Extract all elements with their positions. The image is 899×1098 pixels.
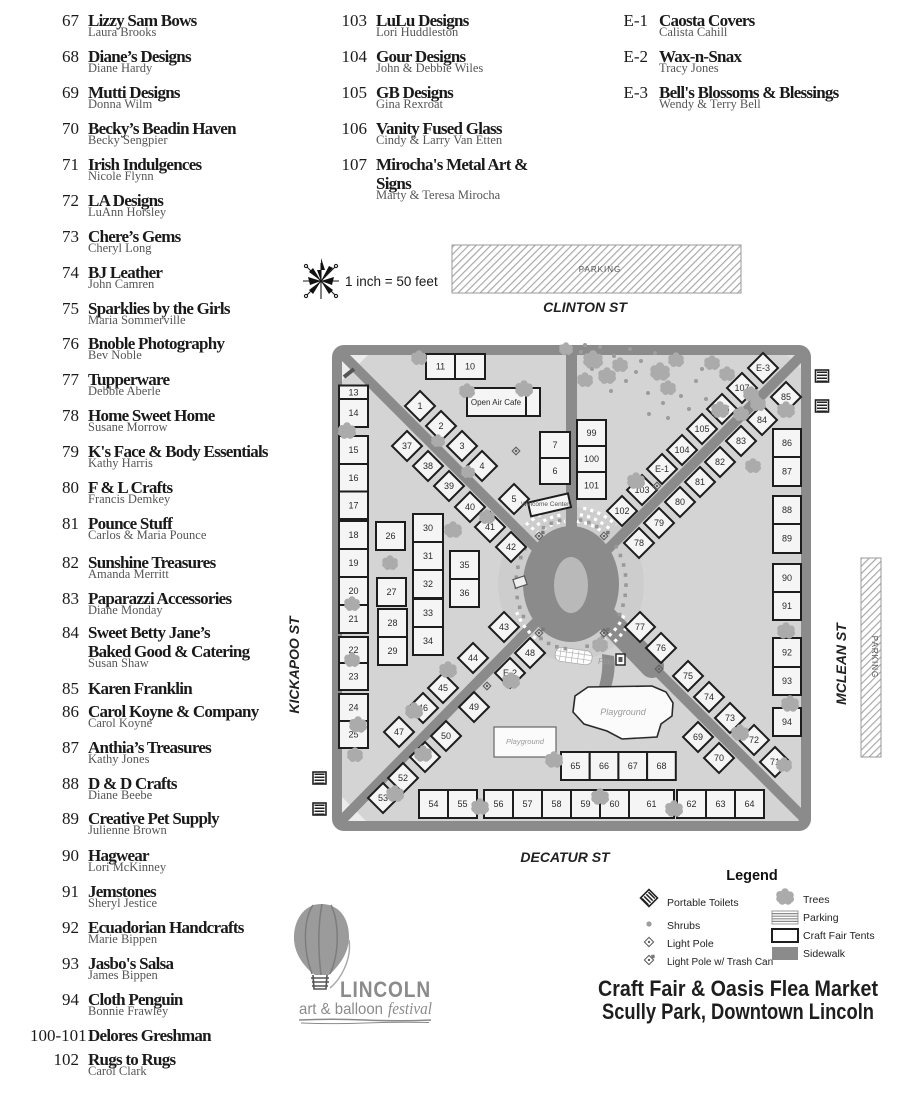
svg-text:Play: Play bbox=[598, 657, 615, 666]
svg-text:42: 42 bbox=[506, 542, 516, 552]
svg-text:87: 87 bbox=[782, 467, 792, 477]
svg-text:Trees: Trees bbox=[803, 894, 829, 906]
svg-text:Light Pole w/ Trash Can: Light Pole w/ Trash Can bbox=[667, 957, 773, 968]
svg-text:26: 26 bbox=[385, 531, 395, 541]
svg-text:80: 80 bbox=[675, 497, 685, 507]
svg-text:3: 3 bbox=[459, 441, 464, 451]
svg-text:34: 34 bbox=[423, 636, 433, 646]
svg-text:Welcome Center: Welcome Center bbox=[521, 501, 570, 508]
svg-text:Playground: Playground bbox=[600, 707, 647, 717]
svg-text:74: 74 bbox=[704, 692, 714, 702]
svg-text:60: 60 bbox=[609, 799, 619, 809]
svg-text:art & balloon: art & balloon bbox=[299, 1001, 383, 1018]
svg-text:76: 76 bbox=[656, 643, 666, 653]
svg-text:69: 69 bbox=[693, 732, 703, 742]
svg-text:15: 15 bbox=[348, 445, 358, 455]
svg-text:68: 68 bbox=[656, 761, 666, 771]
svg-text:52: 52 bbox=[398, 773, 408, 783]
svg-text:78: 78 bbox=[634, 538, 644, 548]
svg-text:102: 102 bbox=[614, 506, 629, 516]
svg-text:94: 94 bbox=[782, 717, 792, 727]
svg-text:6: 6 bbox=[552, 466, 557, 476]
svg-text:27: 27 bbox=[386, 587, 396, 597]
svg-text:79: 79 bbox=[654, 518, 664, 528]
svg-text:48: 48 bbox=[525, 648, 535, 658]
svg-text:63: 63 bbox=[715, 799, 725, 809]
svg-text:91: 91 bbox=[782, 601, 792, 611]
svg-text:101: 101 bbox=[584, 481, 599, 491]
svg-text:Light Pole: Light Pole bbox=[667, 938, 714, 950]
svg-text:93: 93 bbox=[782, 676, 792, 686]
svg-text:89: 89 bbox=[782, 534, 792, 544]
svg-text:100: 100 bbox=[584, 454, 599, 464]
svg-text:23: 23 bbox=[348, 672, 358, 682]
svg-text:35: 35 bbox=[459, 560, 469, 570]
svg-text:30: 30 bbox=[423, 523, 433, 533]
svg-text:88: 88 bbox=[782, 505, 792, 515]
svg-text:55: 55 bbox=[457, 799, 467, 809]
svg-text:37: 37 bbox=[402, 441, 412, 451]
svg-text:61: 61 bbox=[646, 799, 656, 809]
svg-text:18: 18 bbox=[348, 530, 358, 540]
svg-text:E-1: E-1 bbox=[655, 464, 669, 474]
svg-text:10: 10 bbox=[465, 362, 475, 372]
svg-text:36: 36 bbox=[459, 588, 469, 598]
svg-text:90: 90 bbox=[782, 573, 792, 583]
svg-text:PARKING: PARKING bbox=[870, 636, 879, 678]
svg-text:E-3: E-3 bbox=[756, 363, 770, 373]
svg-text:56: 56 bbox=[493, 799, 503, 809]
svg-text:99: 99 bbox=[586, 428, 596, 438]
svg-text:13: 13 bbox=[348, 387, 358, 397]
svg-text:MCLEAN ST: MCLEAN ST bbox=[833, 622, 849, 705]
svg-text:58: 58 bbox=[551, 799, 561, 809]
svg-text:29: 29 bbox=[387, 646, 397, 656]
svg-text:Open Air Cafe: Open Air Cafe bbox=[471, 398, 522, 407]
svg-text:73: 73 bbox=[725, 713, 735, 723]
svg-text:82: 82 bbox=[715, 457, 725, 467]
svg-text:24: 24 bbox=[348, 703, 358, 713]
svg-text:72: 72 bbox=[749, 735, 759, 745]
svg-text:4: 4 bbox=[479, 461, 484, 471]
svg-text:83: 83 bbox=[736, 436, 746, 446]
svg-text:66: 66 bbox=[599, 761, 609, 771]
svg-text:104: 104 bbox=[674, 445, 689, 455]
svg-text:81: 81 bbox=[695, 477, 705, 487]
svg-text:16: 16 bbox=[348, 473, 358, 483]
svg-text:67: 67 bbox=[628, 761, 638, 771]
svg-text:92: 92 bbox=[782, 648, 792, 658]
svg-text:49: 49 bbox=[469, 702, 479, 712]
svg-text:DECATUR ST: DECATUR ST bbox=[520, 849, 611, 865]
svg-text:Scully Park, Downtown Lincoln: Scully Park, Downtown Lincoln bbox=[602, 999, 874, 1024]
svg-text:64: 64 bbox=[744, 799, 754, 809]
svg-text:86: 86 bbox=[782, 438, 792, 448]
svg-text:1: 1 bbox=[417, 401, 422, 411]
svg-text:CLINTON ST: CLINTON ST bbox=[543, 299, 628, 315]
svg-text:Craft Fair Tents: Craft Fair Tents bbox=[803, 930, 875, 942]
svg-text:PARKING: PARKING bbox=[579, 265, 621, 274]
svg-text:20: 20 bbox=[348, 586, 358, 596]
svg-text:KICKAPOO ST: KICKAPOO ST bbox=[286, 615, 302, 714]
svg-text:84: 84 bbox=[757, 415, 767, 425]
svg-text:39: 39 bbox=[444, 481, 454, 491]
svg-text:17: 17 bbox=[348, 500, 358, 510]
svg-text:21: 21 bbox=[348, 614, 358, 624]
svg-text:Parking: Parking bbox=[803, 912, 839, 924]
svg-text:festival: festival bbox=[388, 999, 432, 1018]
svg-text:70: 70 bbox=[714, 753, 724, 763]
svg-text:19: 19 bbox=[348, 558, 358, 568]
svg-text:31: 31 bbox=[423, 551, 433, 561]
svg-text:77: 77 bbox=[635, 622, 645, 632]
svg-text:54: 54 bbox=[428, 799, 438, 809]
svg-text:5: 5 bbox=[511, 494, 516, 504]
svg-text:45: 45 bbox=[438, 683, 448, 693]
svg-text:11: 11 bbox=[436, 362, 445, 372]
svg-text:Shrubs: Shrubs bbox=[667, 920, 700, 932]
svg-text:85: 85 bbox=[781, 392, 791, 402]
svg-text:38: 38 bbox=[423, 461, 433, 471]
svg-text:43: 43 bbox=[499, 622, 509, 632]
svg-text:Legend: Legend bbox=[726, 868, 778, 884]
svg-text:32: 32 bbox=[423, 579, 433, 589]
svg-text:40: 40 bbox=[465, 502, 475, 512]
svg-text:47: 47 bbox=[394, 727, 404, 737]
svg-text:2: 2 bbox=[438, 421, 443, 431]
svg-text:7: 7 bbox=[552, 440, 557, 450]
svg-text:59: 59 bbox=[580, 799, 590, 809]
svg-text:14: 14 bbox=[348, 408, 358, 418]
svg-text:65: 65 bbox=[570, 761, 580, 771]
svg-text:33: 33 bbox=[423, 608, 433, 618]
svg-text:Craft Fair & Oasis Flea Market: Craft Fair & Oasis Flea Market bbox=[598, 976, 879, 1001]
svg-text:28: 28 bbox=[387, 618, 397, 628]
svg-text:75: 75 bbox=[683, 671, 693, 681]
svg-text:Sidewalk: Sidewalk bbox=[803, 948, 846, 960]
svg-text:50: 50 bbox=[441, 731, 451, 741]
svg-text:105: 105 bbox=[694, 424, 709, 434]
svg-text:Portable Toilets: Portable Toilets bbox=[667, 897, 739, 909]
svg-text:62: 62 bbox=[686, 799, 696, 809]
svg-text:44: 44 bbox=[468, 653, 478, 663]
svg-text:1 inch = 50 feet: 1 inch = 50 feet bbox=[345, 274, 438, 289]
svg-text:57: 57 bbox=[522, 799, 532, 809]
svg-text:Playground: Playground bbox=[506, 737, 545, 746]
